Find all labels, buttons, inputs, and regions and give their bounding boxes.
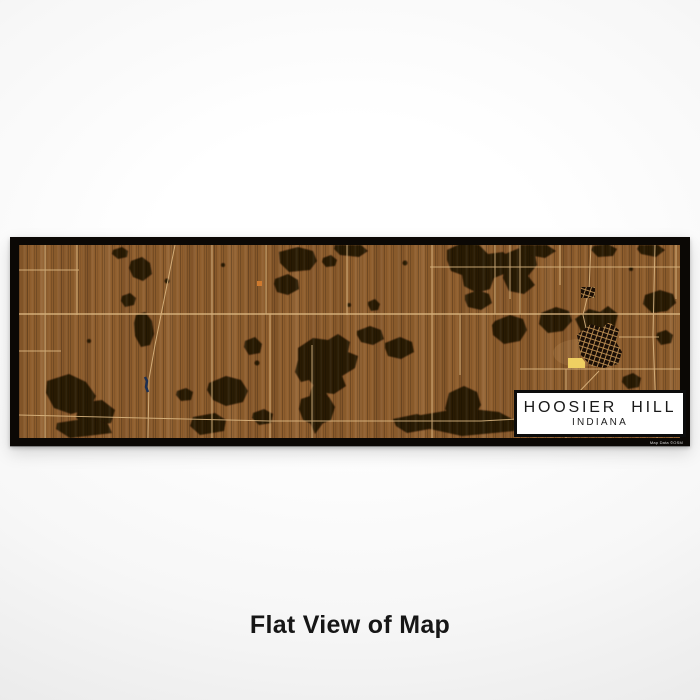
poi-marker <box>257 281 262 286</box>
map-attribution: Map Data ©OSM <box>650 440 683 445</box>
place-name: HOOSIER HILL <box>524 399 677 416</box>
place-region: INDIANA <box>572 417 628 428</box>
map-title-label: HOOSIER HILL INDIANA <box>514 390 686 437</box>
town-area-marker <box>568 358 585 368</box>
map-print[interactable]: HOOSIER HILL INDIANA Map Data ©OSM <box>10 237 690 446</box>
product-photo: HOOSIER HILL INDIANA Map Data ©OSM Flat … <box>0 0 700 700</box>
product-caption: Flat View of Map <box>0 611 700 640</box>
